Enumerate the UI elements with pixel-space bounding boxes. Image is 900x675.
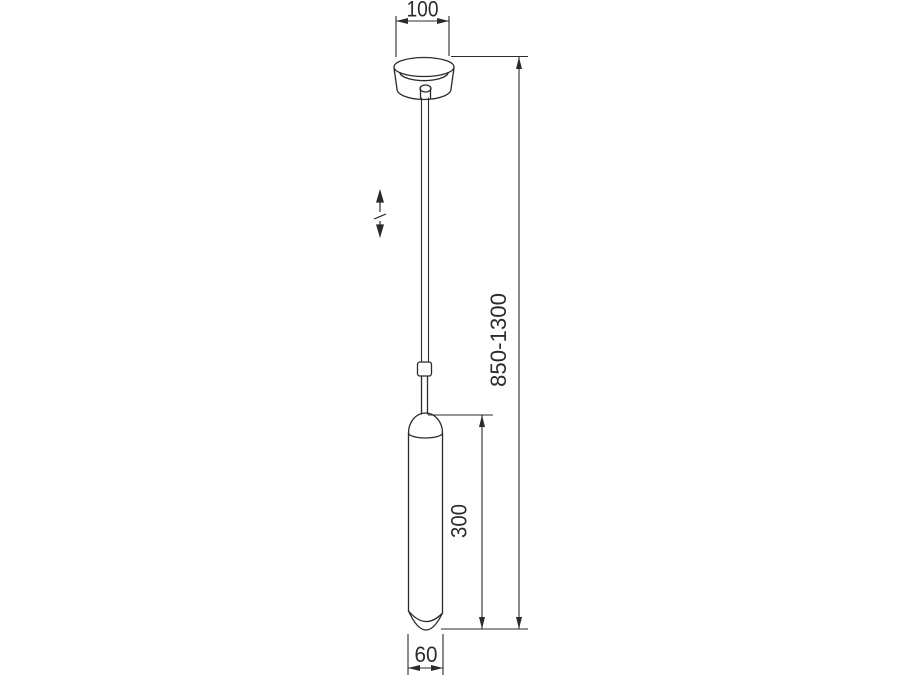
suspension-cable (422, 98, 429, 362)
adjust-arrow-up-icon (377, 191, 383, 202)
dim-body-diameter: 60 (408, 634, 443, 675)
drawing-canvas: 100 850-1300 300 (0, 0, 900, 675)
lamp-body (409, 413, 443, 630)
dim-arrow-up-icon (516, 57, 522, 69)
canopy-cord-grip (420, 85, 431, 98)
dim-overall-height: 850-1300 (441, 57, 528, 630)
height-adjustment-indicator (374, 191, 386, 236)
dim-label-canopy-width: 100 (407, 0, 439, 22)
adjust-break-tick (374, 214, 386, 219)
cord-connector (418, 362, 432, 414)
pendant-light-technical-drawing: 100 850-1300 300 (0, 0, 900, 675)
dim-arrow-down-icon (516, 617, 522, 629)
ceiling-canopy (394, 58, 454, 100)
dim-body-height: 300 (428, 415, 493, 629)
adjust-arrow-down-icon (377, 225, 383, 236)
dim-label-body-height: 300 (447, 504, 472, 538)
dim-arrow-right-icon (437, 18, 449, 24)
dim-label-body-diameter: 60 (415, 642, 438, 667)
dim-label-overall-height: 850-1300 (486, 293, 511, 387)
dim-canopy-width: 100 (396, 0, 449, 57)
dim-arrow-down-icon (479, 617, 485, 629)
dim-arrow-up-icon (479, 415, 485, 427)
fixture-outline (394, 58, 454, 631)
